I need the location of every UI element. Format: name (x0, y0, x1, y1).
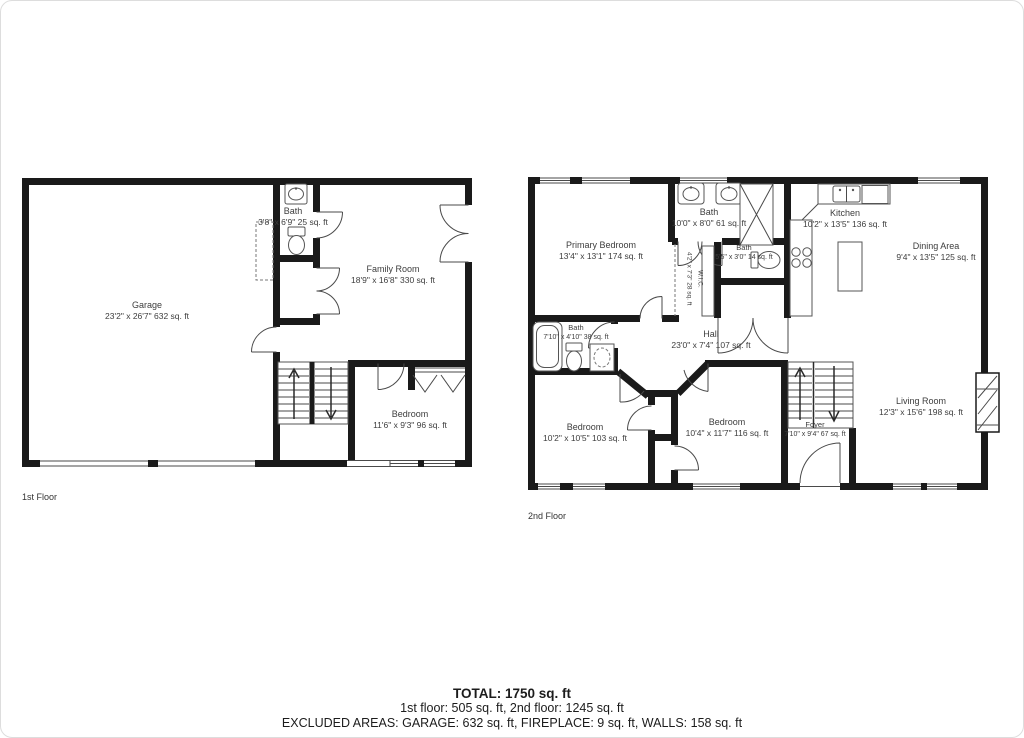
toilet-icon (288, 227, 305, 255)
window (347, 460, 455, 467)
excluded-areas-text: EXCLUDED AREAS: GARAGE: 632 sq. ft, FIRE… (0, 716, 1024, 731)
floorplan-image: Garage 23'2" x 26'7" 632 sq. ft Bath 3'8… (0, 0, 1024, 738)
fireplace-icon (976, 373, 999, 432)
sink-icon (285, 184, 307, 204)
room-label-bedroom-left: Bedroom 10'2" x 10'5" 103 sq. ft (543, 422, 627, 444)
utility-closet-outline (256, 222, 273, 280)
room-label-bath-big: Bath 10'0" x 8'0" 61 sq. ft (672, 207, 747, 229)
sink-icon (678, 183, 742, 204)
total-area-text: TOTAL: 1750 sq. ft (0, 686, 1024, 701)
room-label-bath-small: Bath 5'5" x 3'0" 14 sq. ft (715, 243, 772, 262)
kitchen-sink-icon (833, 186, 860, 202)
kitchen-island (838, 242, 862, 291)
room-label-garage: Garage 23'2" x 26'7" 632 sq. ft (105, 300, 189, 322)
garage-door (40, 460, 255, 467)
patio-double-door (440, 205, 472, 262)
stairs-icon (278, 362, 348, 424)
room-label-dining-area: Dining Area 9'4" x 13'5" 125 sq. ft (896, 241, 975, 263)
room-label-bath-1f: Bath 3'8" x 6'9" 25 sq. ft (258, 206, 328, 228)
room-label-family-room: Family Room 18'9" x 16'8" 330 sq. ft (351, 264, 435, 286)
room-label-living-room: Living Room 12'3" x 15'6" 198 sq. ft (879, 396, 963, 418)
room-label-hall: Hall 23'0" x 7'4" 107 sq. ft (671, 329, 750, 351)
room-label-wic: 4'2" x 7'3" 28 sq. ft W.I.C. (685, 252, 704, 305)
room-label-kitchen: Kitchen 10'2" x 13'5" 136 sq. ft (803, 208, 887, 230)
area-summary: TOTAL: 1750 sq. ft 1st floor: 505 sq. ft… (0, 686, 1024, 730)
room-label-foyer: Foyer 7'10" x 9'4" 67 sq. ft (784, 420, 845, 439)
stairs-icon (788, 362, 853, 428)
front-door (800, 443, 840, 490)
floorplan-drawing (0, 0, 1024, 738)
floor1-label: 1st Floor (22, 492, 57, 502)
floor2-label: 2nd Floor (528, 511, 566, 521)
toilet-icon (566, 343, 582, 371)
room-label-bedroom-1f: Bedroom 11'6" x 9'3" 96 sq. ft (373, 409, 447, 431)
floor-areas-text: 1st floor: 505 sq. ft, 2nd floor: 1245 s… (0, 701, 1024, 716)
vanity-sink-icon (590, 344, 614, 371)
room-label-bedroom-right: Bedroom 10'4" x 11'7" 116 sq. ft (686, 417, 769, 439)
room-label-primary-bedroom: Primary Bedroom 13'4" x 13'1" 174 sq. ft (559, 240, 643, 262)
room-label-bath-hall: Bath 7'10" x 4'10" 38 sq. ft (543, 323, 608, 342)
closet-bifold-doors (413, 368, 465, 392)
